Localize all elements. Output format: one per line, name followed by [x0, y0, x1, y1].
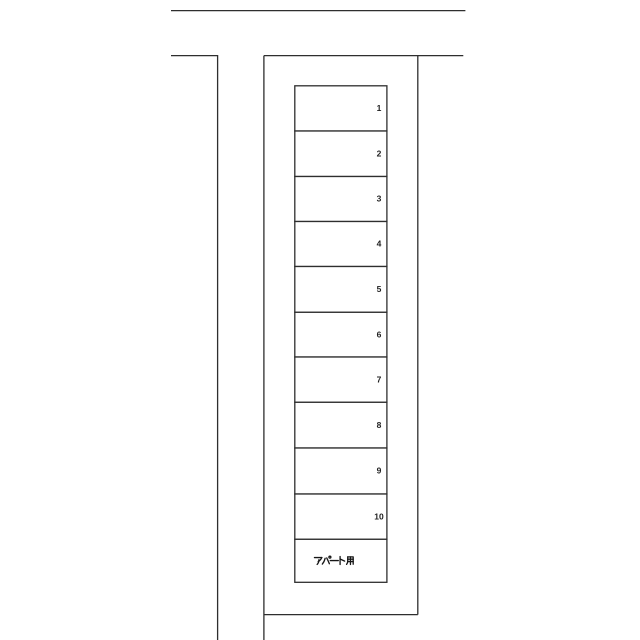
svg-text:9: 9 [377, 466, 382, 476]
svg-text:10: 10 [374, 511, 384, 521]
svg-text:4: 4 [377, 239, 382, 249]
svg-text:5: 5 [377, 284, 382, 294]
svg-text:8: 8 [377, 420, 382, 430]
svg-text:7: 7 [377, 374, 382, 384]
svg-text:1: 1 [377, 103, 382, 113]
svg-text:3: 3 [377, 194, 382, 204]
svg-text:6: 6 [377, 329, 382, 339]
svg-text:2: 2 [377, 149, 382, 159]
